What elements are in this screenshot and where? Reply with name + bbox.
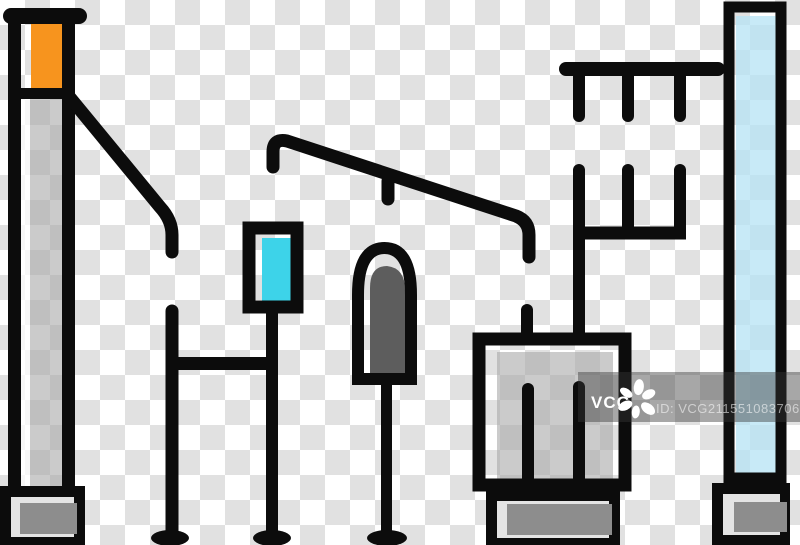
overhead-cable-icon: [273, 140, 529, 257]
cable-line: [273, 140, 529, 257]
mast-highlight-strip: [21, 99, 30, 486]
glass-column-icon: [712, 7, 790, 545]
dome-sensor-icon: [358, 248, 411, 545]
mast-left-rail: [8, 16, 21, 486]
dome-foot: [367, 530, 407, 545]
sign-left-foot: [151, 530, 189, 545]
column-base-core: [734, 502, 787, 532]
mast-shaft-fill: [30, 99, 63, 486]
watermark: VCG ID: VCG211551083706: [578, 372, 800, 422]
substation-illustration: VCG ID: VCG211551083706: [0, 0, 800, 545]
stock-image-canvas: VCG ID: VCG211551083706: [0, 0, 800, 545]
box-base-core: [507, 504, 612, 535]
sign-crossbar: [166, 357, 278, 370]
sign-cyan-panel: [262, 238, 293, 303]
insulator-rack-icon: [566, 69, 718, 339]
guy-wire-icon: [67, 94, 172, 252]
mast-orange-lamp: [31, 22, 63, 88]
sign-post: [266, 310, 278, 537]
mast-top-cap: [3, 8, 87, 24]
dome-core: [370, 266, 405, 373]
signal-mast-icon: [0, 8, 172, 545]
mast-base-core: [20, 503, 77, 534]
watermark-id: ID: VCG211551083706: [656, 401, 800, 416]
transformer-box-icon: [479, 310, 625, 545]
sign-right-foot: [253, 530, 291, 545]
mast-right-rail: [62, 16, 75, 486]
dome-pole: [381, 380, 392, 533]
cyan-sign-icon: [151, 228, 297, 545]
